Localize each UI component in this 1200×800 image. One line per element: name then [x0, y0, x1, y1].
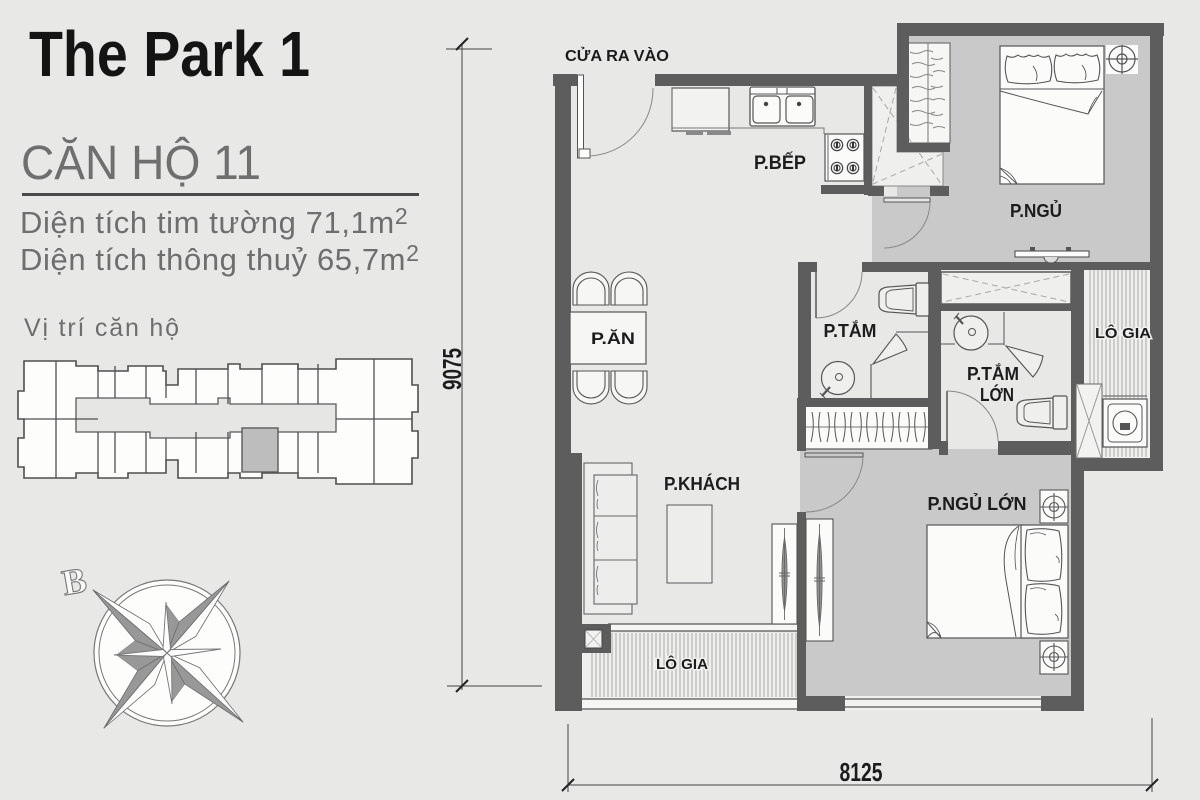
- svg-text:P.NGỦ LỚN: P.NGỦ LỚN: [928, 493, 1027, 514]
- svg-text:The Park 1: The Park 1: [29, 18, 310, 90]
- svg-text:P.NGỦ: P.NGỦ: [1010, 200, 1062, 221]
- svg-text:LÔ GIA: LÔ GIA: [656, 655, 708, 673]
- svg-text:Diện tích tim tường 71,1m2: Diện tích tim tường 71,1m2: [20, 203, 408, 240]
- svg-text:Diện tích thông thuỷ 65,7m2: Diện tích thông thuỷ 65,7m2: [20, 240, 420, 277]
- svg-text:Vị trí căn hộ: Vị trí căn hộ: [24, 314, 181, 342]
- svg-text:P.TẮM: P.TẮM: [967, 363, 1019, 384]
- svg-text:CỬA RA VÀO: CỬA RA VÀO: [565, 46, 669, 65]
- svg-text:CĂN HỘ 11: CĂN HỘ 11: [21, 136, 261, 190]
- svg-text:P.KHÁCH: P.KHÁCH: [664, 473, 740, 494]
- svg-text:P.BẾP: P.BẾP: [754, 152, 806, 174]
- svg-text:9075: 9075: [437, 348, 467, 390]
- svg-text:P.ĂN: P.ĂN: [591, 329, 635, 348]
- svg-text:LÔ GIA: LÔ GIA: [1095, 324, 1151, 342]
- svg-text:P.TẮM: P.TẮM: [824, 320, 877, 341]
- svg-text:8125: 8125: [840, 757, 883, 787]
- svg-text:LỚN: LỚN: [980, 384, 1014, 405]
